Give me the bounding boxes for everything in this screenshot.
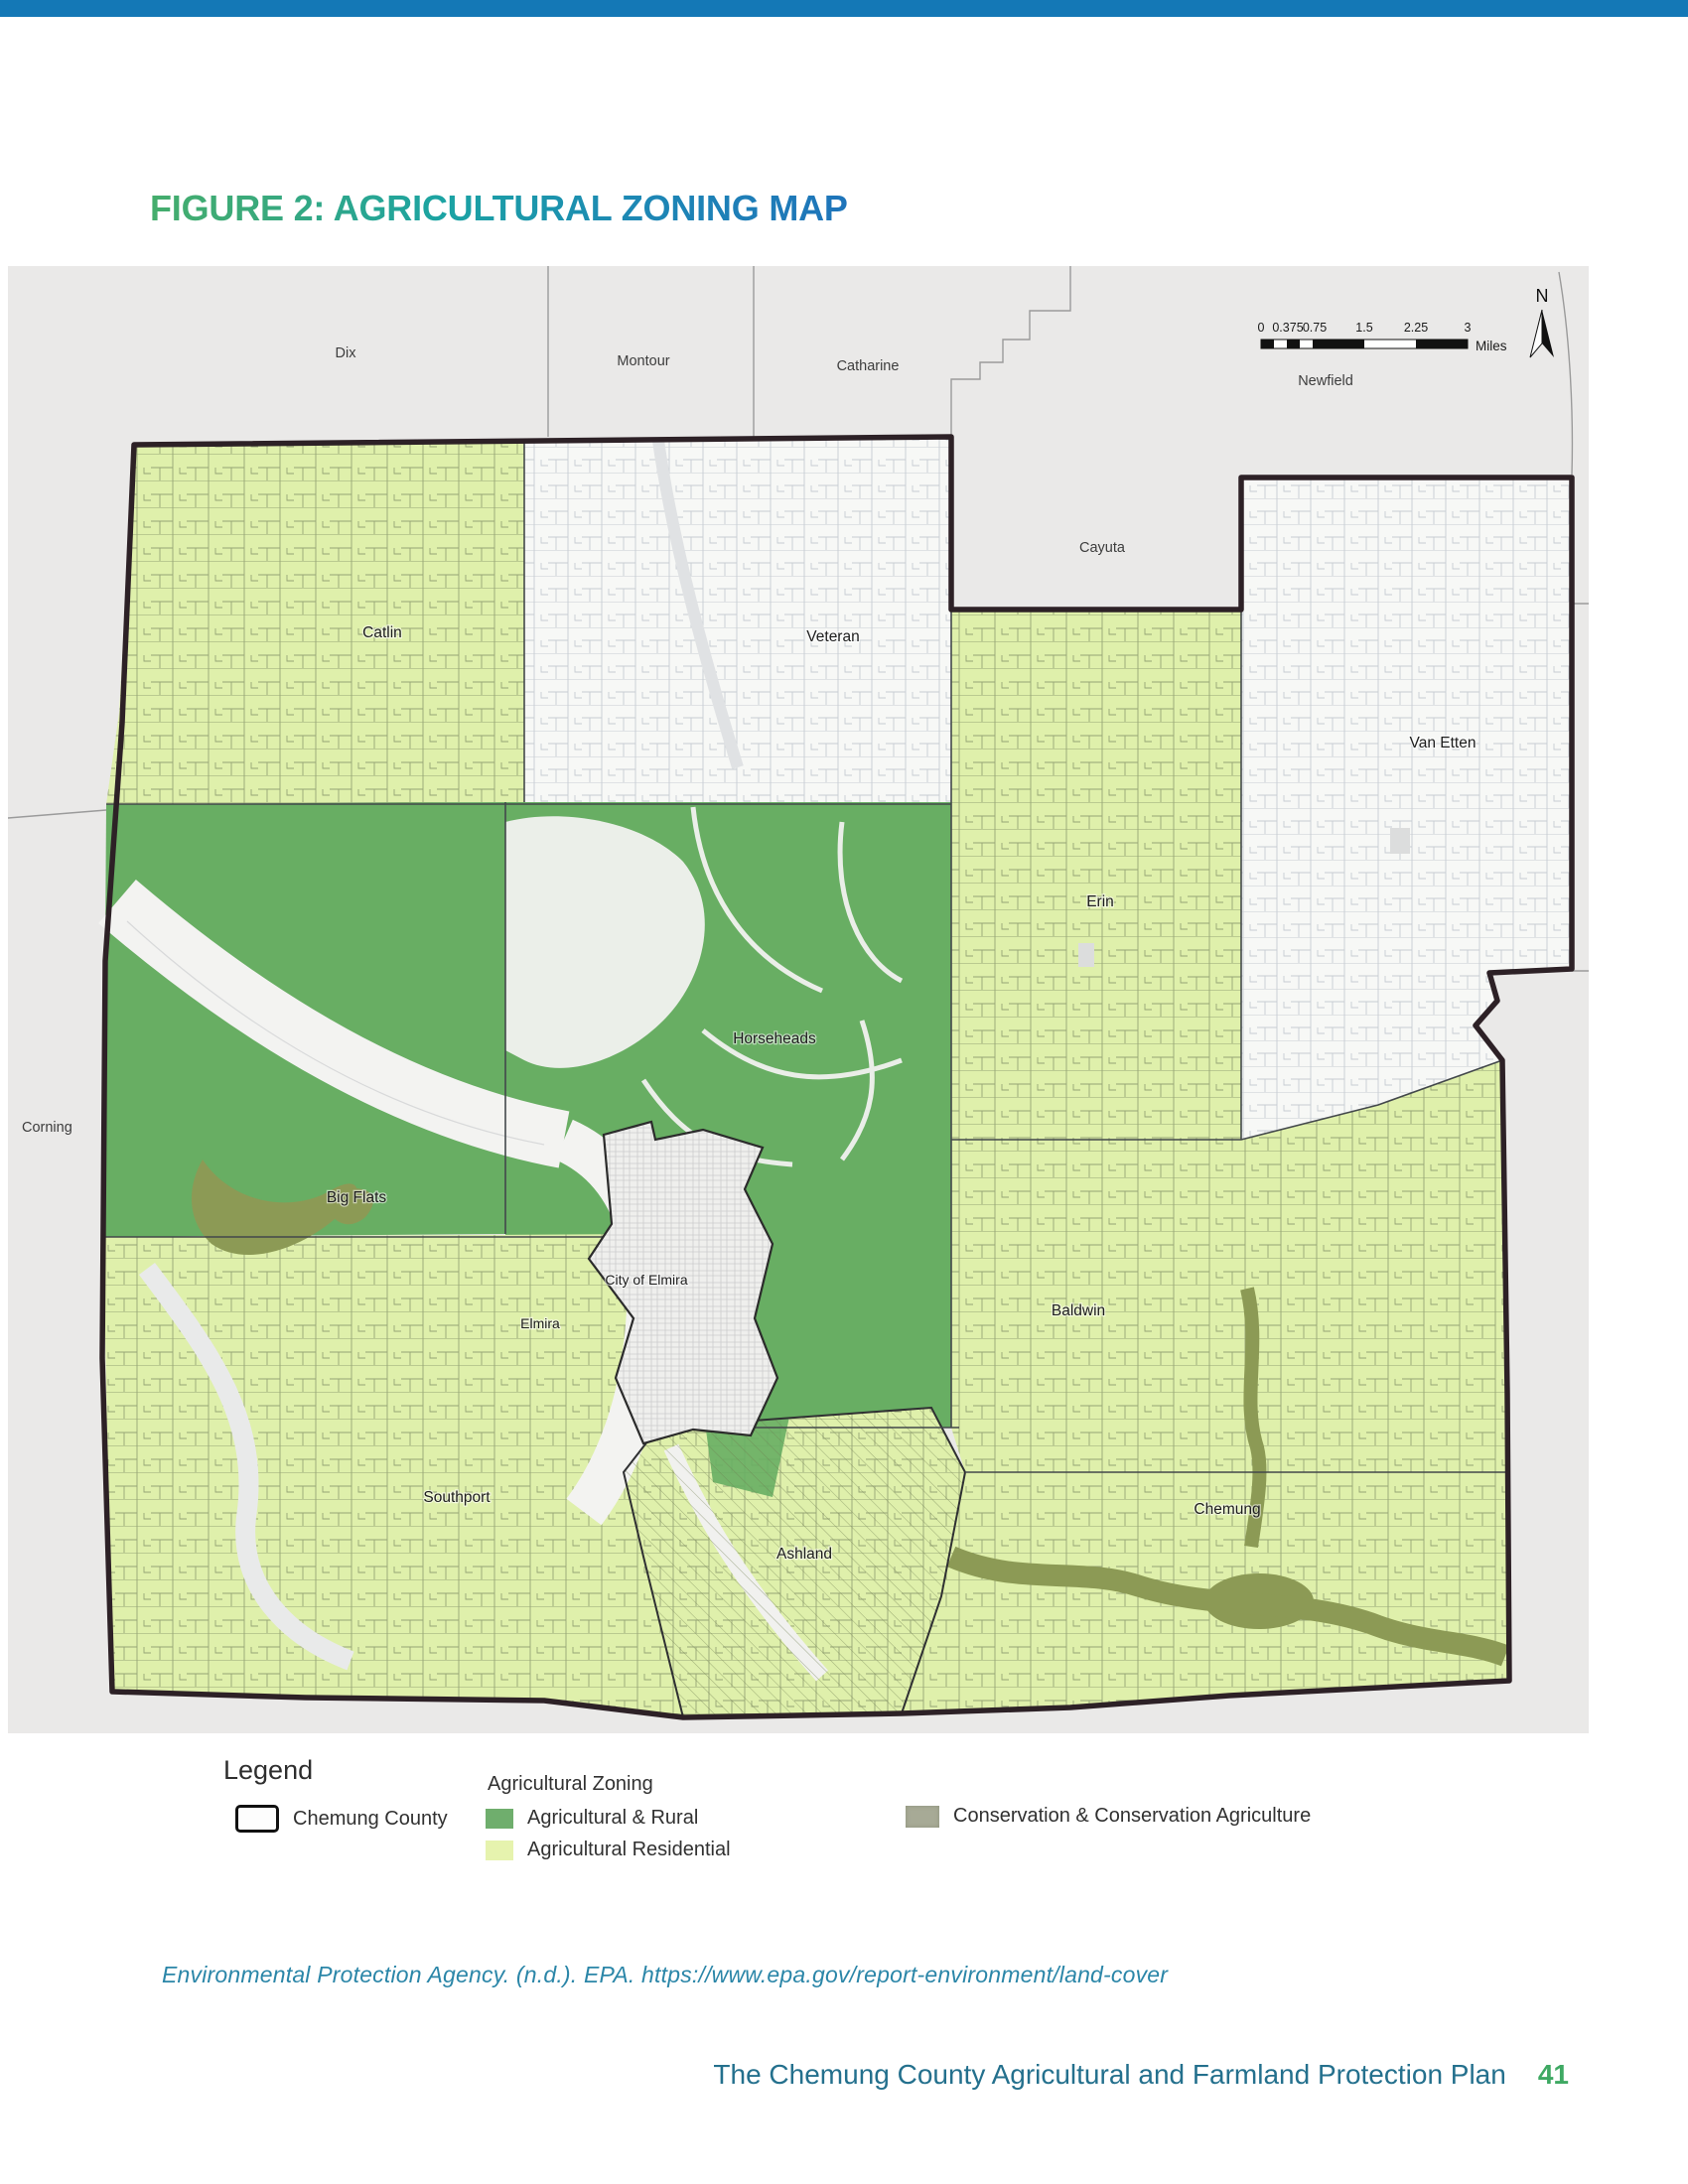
agricultural-zoning-map: 0 0.375 0.75 1.5 2.25 3 Miles N Dix Mont… [8, 266, 1589, 1733]
legend-item-conservation: Conservation & Conservation Agriculture [906, 1805, 1311, 1828]
scale-tick-4: 2.25 [1404, 321, 1428, 335]
agricultural-rural-swatch [486, 1809, 513, 1829]
label-newfield: Newfield [1298, 373, 1353, 389]
page-number: 41 [1538, 2059, 1569, 2091]
page-footer: The Chemung County Agricultural and Farm… [713, 2059, 1569, 2091]
label-corning: Corning [22, 1120, 72, 1136]
legend-residential-label: Agricultural Residential [527, 1839, 731, 1861]
label-elmira: Elmira [520, 1315, 560, 1331]
legend-item-agricultural-residential: Agricultural Residential [486, 1839, 731, 1861]
label-dix: Dix [336, 345, 357, 361]
label-horseheads: Horseheads [733, 1030, 816, 1047]
scale-tick-0: 0 [1258, 321, 1265, 335]
footer-title: The Chemung County Agricultural and Farm… [713, 2059, 1505, 2091]
legend-conservation-label: Conservation & Conservation Agriculture [953, 1805, 1311, 1828]
top-accent-bar [0, 0, 1688, 17]
report-page: FIGURE 2: AGRICULTURAL ZONING MAP [0, 0, 1688, 2184]
legend-item-county: Chemung County [235, 1805, 448, 1833]
label-cayuta: Cayuta [1079, 540, 1126, 556]
label-ashland: Ashland [776, 1546, 832, 1563]
north-label: N [1536, 286, 1549, 306]
scale-tick-5: 3 [1465, 321, 1472, 335]
legend-zoning-heading: Agricultural Zoning [488, 1773, 653, 1796]
legend-county-label: Chemung County [293, 1808, 448, 1831]
legend-heading: Legend [223, 1755, 313, 1786]
town-erin-area [951, 610, 1241, 1140]
label-big-flats: Big Flats [327, 1189, 387, 1206]
county-outline-swatch [235, 1805, 279, 1833]
label-catlin: Catlin [362, 624, 402, 641]
agricultural-residential-swatch [486, 1841, 513, 1860]
label-catharine: Catharine [837, 358, 900, 374]
label-veteran: Veteran [806, 628, 859, 645]
scale-tick-1: 0.375 [1272, 321, 1303, 335]
scale-tick-3: 1.5 [1355, 321, 1372, 335]
label-baldwin: Baldwin [1052, 1302, 1105, 1319]
scale-tick-2: 0.75 [1303, 321, 1327, 335]
source-citation: Environmental Protection Agency. (n.d.).… [162, 1962, 1168, 1988]
conservation-swatch [906, 1806, 939, 1828]
label-southport: Southport [423, 1489, 491, 1506]
ashland-hatch [624, 1408, 965, 1717]
legend-rural-label: Agricultural & Rural [527, 1807, 698, 1830]
town-catlin-area [106, 441, 524, 804]
label-chemung: Chemung [1194, 1501, 1260, 1518]
label-erin: Erin [1086, 893, 1114, 910]
label-city-of-elmira: City of Elmira [605, 1272, 687, 1288]
figure-title: FIGURE 2: AGRICULTURAL ZONING MAP [150, 188, 848, 229]
label-van-etten: Van Etten [1410, 735, 1477, 751]
label-montour: Montour [617, 353, 669, 369]
legend-item-agricultural-rural: Agricultural & Rural [486, 1807, 698, 1830]
scale-unit-label: Miles [1476, 339, 1507, 353]
